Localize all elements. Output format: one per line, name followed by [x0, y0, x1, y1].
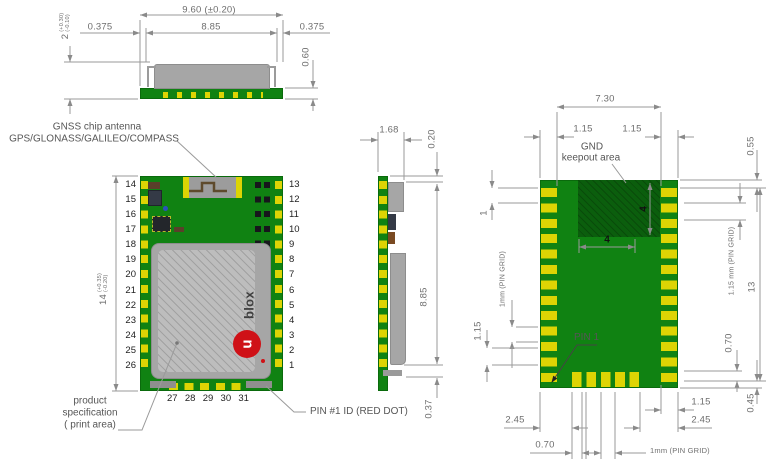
bottom-pads-bottom [572, 372, 640, 387]
side-top-dim: 0.20 [427, 129, 438, 148]
side-component-2 [388, 232, 395, 244]
pin-label: 28 [185, 393, 196, 404]
pin-label: 24 [125, 330, 136, 341]
pin-label: 8 [289, 254, 294, 265]
pin-label: 31 [238, 393, 249, 404]
pin-label: 16 [125, 209, 136, 220]
pin-label: 12 [289, 194, 300, 205]
front-thickness-dim: 2 (+0.30)(-0.10) [59, 13, 71, 39]
component-led [163, 206, 168, 211]
front-right-margin-dim: 0.375 [300, 22, 325, 33]
ublox-logo-u: u [239, 339, 256, 348]
side-castellation [379, 181, 387, 368]
side-width-dim: 1.68 [379, 125, 398, 136]
pin-label: 17 [125, 224, 136, 235]
side-shield-profile [390, 253, 406, 365]
pin-label: 30 [221, 393, 232, 404]
bottom-070-dim: 0.70 [535, 440, 554, 451]
via-column-1 [255, 182, 261, 247]
bottom-245-left-dim: 2.45 [505, 415, 524, 426]
gnd-keepout-label-line2: keepout area [562, 153, 620, 164]
pin-label: 6 [289, 285, 294, 296]
component-chip-1 [148, 190, 162, 206]
front-shield-can [154, 64, 270, 89]
right-height-dim: 13 [747, 282, 758, 293]
bottom-pad-right-dim: 1.15 [622, 124, 641, 135]
left-pin-grid-dim: 1mm (PIN GRID) [500, 251, 507, 307]
pin-label: 29 [203, 393, 214, 404]
component-chip-2 [152, 216, 171, 232]
castellation-left [141, 181, 148, 368]
keepout-height-dim: 4 [639, 206, 650, 212]
castellation-right [275, 181, 282, 368]
left-first-pitch-dim: 1 [479, 210, 490, 215]
pin-label: 20 [125, 269, 136, 280]
pin-label: 4 [289, 315, 294, 326]
keepout-width-dim: 4 [604, 235, 610, 246]
antenna-feed-left [183, 177, 189, 198]
shield-tab-right [246, 381, 272, 388]
right-070-dim: 0.70 [724, 333, 735, 352]
pin-label: 10 [289, 224, 300, 235]
pin-label: 26 [125, 360, 136, 371]
corner-offset-dim: 0.55 [746, 136, 757, 155]
pin-label: 25 [125, 345, 136, 356]
pin-label: 22 [125, 300, 136, 311]
bottom-pads-right [661, 188, 677, 382]
pin-label: 5 [289, 300, 294, 311]
pin-label: 7 [289, 269, 294, 280]
pin-label: 9 [289, 239, 294, 250]
mechanical-drawing: 9.60 (±0.20) 0.375 8.85 0.375 0.60 2 (+0… [0, 0, 775, 461]
component-small-2 [174, 227, 184, 232]
right-045-dim: 0.45 [746, 393, 757, 412]
pin1-label: PIN 1 [574, 332, 599, 343]
pin-label: 14 [125, 179, 136, 190]
front-height-dim: 0.60 [301, 47, 312, 66]
side-shield-tab [383, 370, 402, 376]
bottom-width-dim: 7.30 [595, 94, 614, 105]
antenna-block [183, 177, 242, 198]
via-column-2 [264, 182, 270, 247]
right-pin-grid-dim: 1.15 mm (PIN GRID) [729, 227, 736, 296]
top-height-dim: 14 (+0.35)(-0.20) [97, 273, 109, 305]
front-overall-dim: 9.60 (±0.20) [182, 5, 236, 16]
left-115-dim: 1.15 [473, 321, 484, 340]
pin-label: 1 [289, 360, 294, 371]
pin-label: 3 [289, 330, 294, 341]
ublox-registered-dot [261, 359, 265, 363]
pin-label: 21 [125, 285, 136, 296]
print-area-label-line1: product [73, 396, 106, 407]
antenna-label-line2: GPS/GLONASS/GALILEO/COMPASS [9, 134, 179, 145]
pin-label: 11 [289, 209, 299, 220]
ublox-logo-text: blox [242, 291, 257, 319]
print-area-label-line2: specification [62, 408, 117, 419]
shield-clip-left-icon [147, 66, 156, 87]
shield-tab-left [150, 381, 176, 388]
pin-labels-bottom: 27 28 29 30 31 [167, 393, 249, 404]
pin-label: 23 [125, 315, 136, 326]
pin-labels-right: 13 12 11 10 9 8 7 6 5 4 3 2 1 [289, 179, 313, 371]
component-small-1 [148, 182, 160, 189]
antenna-feed-right [236, 177, 242, 198]
gnd-keepout-label-line1: GND [581, 142, 603, 153]
antenna-label-line1: GNSS chip antenna [53, 122, 141, 133]
castellation-bottom [169, 383, 247, 390]
front-solder-pads [163, 92, 263, 98]
bottom-pads-left [541, 188, 557, 382]
bottom-pad-left-dim: 1.15 [573, 124, 592, 135]
pin-label: 27 [167, 393, 178, 404]
side-bottom-dim: 0.37 [424, 399, 435, 418]
bottom-245-right-dim: 2.45 [691, 415, 710, 426]
pin-label: 2 [289, 345, 294, 356]
front-center-dim: 8.85 [201, 22, 220, 33]
pin-label: 13 [289, 179, 300, 190]
print-area-label-line3: ( print area) [64, 420, 116, 431]
pin-labels-left: 14 15 16 17 18 19 20 21 22 23 24 25 26 [112, 179, 136, 371]
side-antenna-profile [388, 182, 404, 212]
front-left-margin-dim: 0.375 [88, 22, 113, 33]
bottom-115-dim: 1.15 [691, 397, 710, 408]
side-component-1 [388, 214, 396, 230]
side-body-dim: 8.85 [419, 287, 430, 306]
pin-label: 18 [125, 239, 136, 250]
shield-clip-right-icon [267, 66, 276, 87]
pin-label: 19 [125, 254, 136, 265]
bottom-pin-grid-dim: 1mm (PIN GRID) [650, 446, 710, 455]
pin1-id-label: PIN #1 ID (RED DOT) [310, 406, 408, 417]
pin-label: 15 [125, 194, 136, 205]
